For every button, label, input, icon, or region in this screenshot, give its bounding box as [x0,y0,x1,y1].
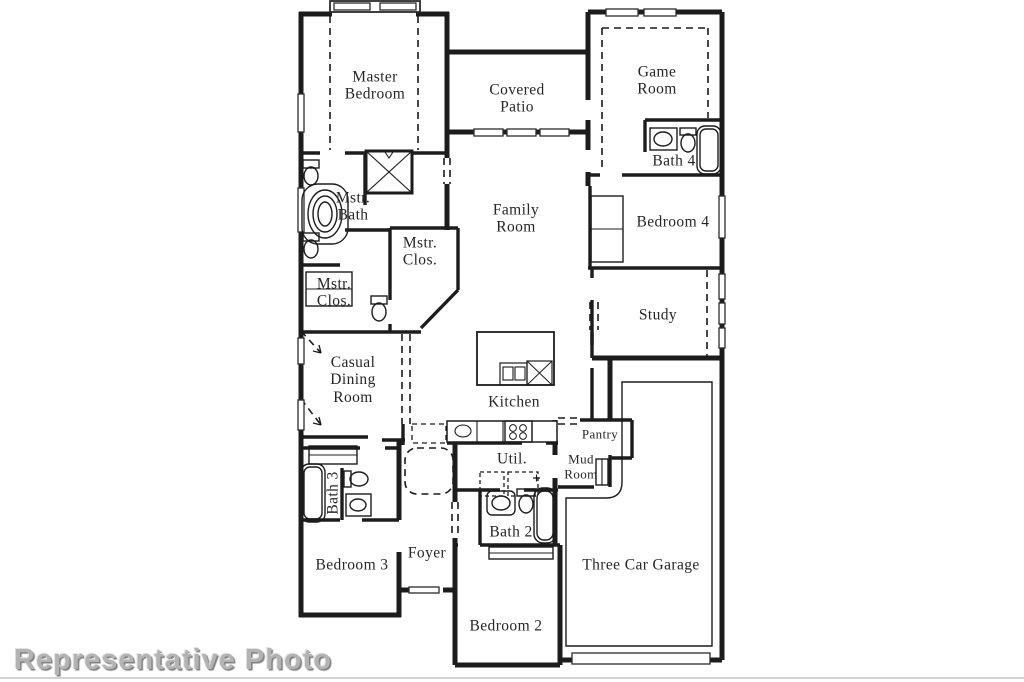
kitchen-counter [447,421,557,442]
bathtub-icon-bath3 [301,464,325,522]
room-label-casual-dining: Casual Dining Room [330,354,375,406]
room-label-family-room: Family Room [493,202,539,237]
kitchen-island [477,332,554,385]
room-label-bath3: Bath 3 [324,471,341,514]
room-label-foyer: Foyer [408,544,446,561]
room-label-bedroom2: Bedroom 2 [470,617,543,634]
room-label-bath4: Bath 4 [652,152,695,169]
room-label-mstr-bath: Mstr. Bath [336,190,370,225]
room-label-bedroom3: Bedroom 3 [316,556,389,573]
room-label-mud-room: Mud Room [564,452,597,481]
ray-arrowheads [313,345,321,425]
foyer-ceiling-niche [405,448,453,494]
room-label-util: Util. [497,450,527,467]
room-label-study: Study [639,306,677,323]
room-label-master-bedroom: Master Bedroom [345,69,406,104]
room-label-bath2: Bath 2 [489,523,532,540]
room-label-bedroom4: Bedroom 4 [637,213,710,230]
room-label-garage: Three Car Garage [582,556,699,573]
washer-plus-mark [533,475,540,482]
shower-icon [366,151,412,193]
bathtub-icon-bath4 [697,126,721,174]
front-door [409,587,439,593]
floor-plan: Master Bedroom Covered Patio Game Room B… [0,0,1024,682]
room-label-kitchen: Kitchen [488,393,540,410]
watermark-text: Representative Photo [14,644,332,677]
room-label-mstr-clos-left: Mstr. Clos. [317,276,351,311]
room-label-pantry: Pantry [582,428,618,443]
garage-door [572,653,710,664]
refrigerator-icon [412,424,446,443]
bottom-border-line [0,677,1024,679]
bathtub-icon-bath2 [534,488,556,543]
room-label-mstr-clos-right: Mstr. Clos. [403,235,437,270]
room-label-game-room: Game Room [637,64,677,99]
room-label-covered-patio: Covered Patio [489,82,544,117]
